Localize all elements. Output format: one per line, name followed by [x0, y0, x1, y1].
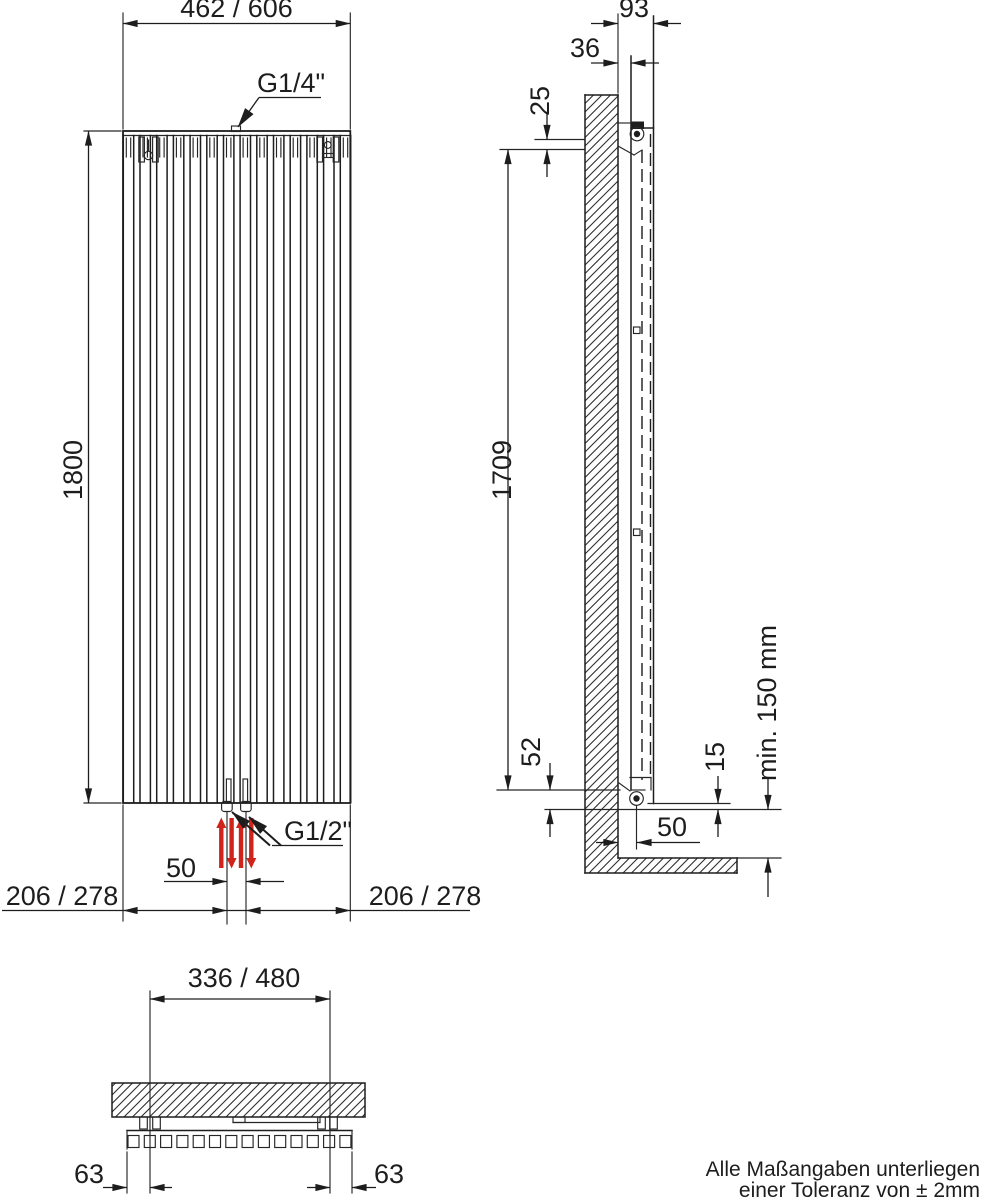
dim-52: 52 [516, 737, 781, 837]
radiator-front-body [123, 126, 351, 812]
dim-width: 462 / 606 [123, 0, 350, 129]
dim-50-label: 50 [166, 853, 196, 883]
tolerance-note: Alle Maßangaben unterliegen einer Tolera… [706, 1158, 980, 1200]
g14-leader: G1/4" [238, 68, 325, 127]
tolerance-note-line2: einer Toleranz von ± 2mm [739, 1179, 980, 1200]
dim-63-right-label: 63 [374, 1159, 404, 1189]
wall-bracket-bottom [619, 778, 651, 850]
radiator-tubes [123, 136, 350, 803]
dim-height-label: 1800 [58, 440, 88, 500]
wall-section [585, 95, 618, 873]
bottom-view: 336 / 480 63 63 [74, 963, 404, 1193]
dim-36: 36 [570, 33, 659, 63]
dim-52-label: 52 [516, 737, 546, 767]
dim-93-label: 93 [619, 0, 649, 23]
dim-height: 1800 [58, 131, 121, 803]
front-view: G1/4" G1/2" 462 / 606 1800 [2, 0, 481, 924]
g14-label: G1/4" [257, 68, 325, 98]
dim-25-label: 25 [525, 86, 555, 116]
side-view: 93 36 25 1709 52 [487, 0, 782, 897]
dim-25: 25 [500, 86, 585, 177]
dim-63-left-label: 63 [74, 1159, 104, 1189]
tube-cross-sections [128, 1136, 351, 1148]
min-150-label: min. 150 mm [752, 625, 782, 781]
bottom-view-brackets [140, 1117, 338, 1129]
dim-width-label: 462 / 606 [180, 0, 293, 23]
dim-36-label: 36 [570, 33, 600, 63]
dim-offset-right-label: 206 / 278 [369, 881, 482, 911]
technical-drawing-page: G1/4" G1/2" 462 / 606 1800 [0, 0, 983, 1200]
dim-min-150: min. 150 mm [737, 625, 782, 897]
radiator-dimension-drawing: G1/4" G1/2" 462 / 606 1800 [0, 0, 983, 1200]
bottom-collector [127, 1131, 352, 1150]
dim-offset-left-label: 206 / 278 [6, 881, 119, 911]
mounting-bracket-front-left [139, 137, 158, 162]
bottom-valve-detail [226, 779, 247, 802]
dim-1709-label: 1709 [487, 440, 517, 500]
flow-direction-arrows [216, 818, 256, 869]
tolerance-note-line1: Alle Maßangaben unterliegen [706, 1158, 980, 1181]
dim-bracket-spacing: 336 / 480 [150, 963, 330, 999]
dim-end-offsets: 63 63 [74, 1152, 404, 1193]
dim-93: 93 [591, 0, 681, 93]
tube-weld-nub-upper [634, 327, 641, 334]
mounting-bracket-front-right [317, 137, 339, 162]
dim-336-480-label: 336 / 480 [188, 963, 301, 993]
dim-15-label: 15 [700, 742, 730, 772]
g12-label: G1/2" [284, 816, 352, 846]
dim-50-side-label: 50 [657, 812, 687, 842]
tube-weld-nub-lower [634, 529, 641, 536]
